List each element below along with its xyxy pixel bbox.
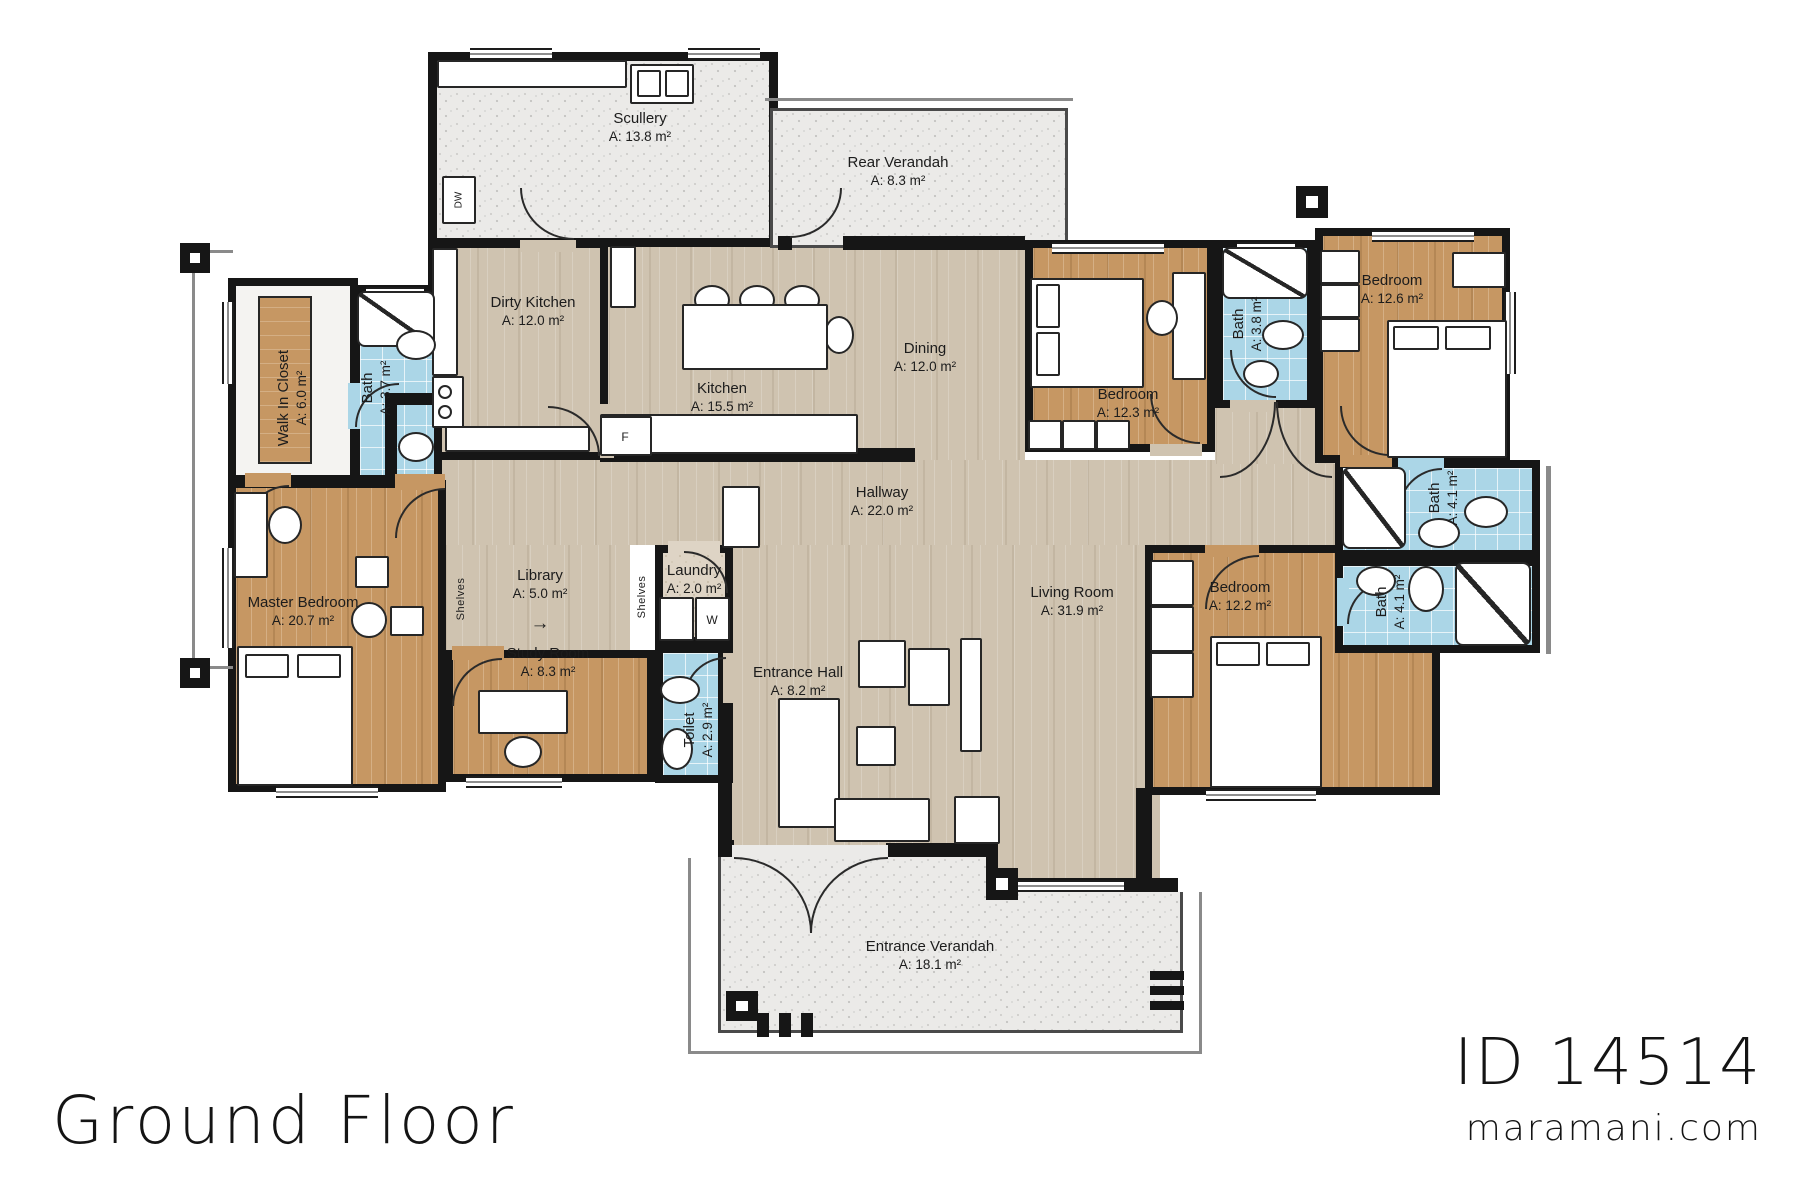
step-marker [779, 1013, 791, 1037]
label-bath-right-top: BathA: 3.8 m² [1230, 297, 1266, 352]
pillar [180, 658, 210, 688]
furniture-desk [1172, 272, 1206, 380]
furniture-chair [1146, 300, 1178, 336]
furniture-dining-table [682, 304, 828, 370]
furniture-basin [398, 432, 434, 462]
furniture-closet-box [1320, 318, 1360, 352]
label-bath-upper-right: BathA: 4.1 m² [1426, 471, 1462, 526]
label-library: LibraryA: 5.0 m² [513, 567, 568, 603]
furniture-chair [504, 736, 542, 768]
door-gap [1340, 455, 1392, 467]
label-master-bedroom: Master BedroomA: 20.7 m² [247, 594, 359, 630]
furniture-stove-ring [438, 405, 452, 419]
label-scullery: SculleryA: 13.8 m² [609, 110, 671, 146]
terrace-line [1546, 466, 1551, 654]
dishwasher-label: DW [454, 192, 465, 209]
furniture-pillow [1216, 642, 1260, 666]
furniture-shower [1455, 562, 1531, 646]
furniture-coffee-table [856, 726, 896, 766]
furniture-chair [268, 506, 302, 544]
door-gap [1150, 444, 1202, 456]
step-marker [757, 1013, 769, 1037]
furniture-stove-ring [438, 385, 452, 399]
label-dining: DiningA: 12.0 m² [894, 340, 956, 376]
library-arrow-icon: → [531, 613, 550, 635]
furniture-closet-box [1028, 420, 1062, 450]
window [1012, 880, 1124, 892]
furniture-desk [234, 492, 268, 578]
furniture-armchair [954, 796, 1000, 844]
website-label: maramani.com [1466, 1108, 1762, 1149]
window [688, 48, 760, 60]
label-walk-in-closet: Walk In ClosetA: 6.0 m² [275, 350, 311, 446]
furniture-sofa [834, 798, 930, 842]
terrace-line [1199, 892, 1202, 1054]
furniture-sofa [778, 698, 840, 828]
furniture-laundry-unit [659, 597, 694, 641]
furniture-toilet [660, 676, 700, 704]
furniture-shower [1342, 467, 1406, 549]
label-living-room: Living RoomA: 31.9 m² [1030, 584, 1113, 620]
furniture-hall-cabinet [722, 486, 760, 548]
window [276, 786, 378, 798]
label-entrance-hall: Entrance HallA: 8.2 m² [753, 664, 843, 700]
step-marker [1150, 1001, 1184, 1010]
window [1206, 789, 1316, 801]
pillar [1296, 186, 1328, 218]
label-entrance-verandah: Entrance VerandahA: 18.1 m² [866, 938, 994, 974]
room-entrance-verandah-right [998, 892, 1183, 1033]
terrace-line [688, 858, 691, 1054]
terrace-line [192, 252, 195, 662]
window [466, 776, 562, 788]
furniture-desk [1452, 252, 1506, 288]
shelves-right-label: Shelves [636, 576, 648, 619]
label-bedroom-right-top: BedroomA: 12.3 m² [1097, 386, 1159, 422]
furniture-counter [432, 248, 458, 376]
furniture-pillow [1266, 642, 1310, 666]
furniture-cabinet [610, 246, 636, 308]
label-study-room: Study RoomA: 8.3 m² [507, 645, 590, 681]
label-bath-lower-right: BathA: 4.1 m² [1373, 575, 1409, 630]
wall-segment [778, 236, 792, 250]
step-marker [1150, 971, 1184, 980]
furniture-shower [1222, 247, 1308, 299]
furniture-armchair [355, 556, 389, 588]
furniture-desk [478, 690, 568, 734]
furniture-closet-box [1150, 560, 1194, 606]
step-marker [801, 1013, 813, 1037]
furniture-closet-box [1096, 420, 1130, 450]
pillar [180, 243, 210, 273]
furniture-pillow [1036, 284, 1060, 328]
wall-segment [886, 843, 998, 857]
furniture-armchair [908, 648, 950, 706]
furniture-toilet [1464, 496, 1508, 528]
step-marker [1150, 986, 1184, 995]
window [1372, 230, 1474, 242]
furniture-stove [432, 376, 464, 428]
furniture-toilet [396, 330, 436, 360]
door-gap [732, 845, 888, 859]
label-toilet: ToiletA: 2.9 m² [681, 703, 717, 758]
furniture-armchair [390, 606, 424, 636]
furniture-closet-box [1320, 284, 1360, 318]
pillar [986, 868, 1018, 900]
furniture-pillow [1445, 326, 1491, 350]
furniture-toilet [1408, 566, 1444, 612]
terrace-line [765, 98, 1073, 101]
window [222, 302, 234, 384]
label-bedroom-right-bottom: BedroomA: 12.2 m² [1209, 579, 1271, 615]
window [1052, 242, 1164, 254]
label-laundry: LaundryA: 2.0 m² [667, 562, 722, 598]
furniture-pillow [245, 654, 289, 678]
window [222, 548, 234, 648]
furniture-toilet [1262, 320, 1304, 350]
furniture-counter [445, 426, 590, 452]
furniture-dining-chair [824, 316, 854, 354]
furniture-closet-box [1150, 606, 1194, 652]
label-hallway: HallwayA: 22.0 m² [851, 484, 913, 520]
wall-segment [843, 236, 1025, 250]
furniture-sink-basin [637, 70, 661, 97]
label-bath-master: BathA: 3.7 m² [359, 361, 395, 416]
furniture-pillow [1393, 326, 1439, 350]
terrace-line [688, 1051, 1202, 1054]
label-kitchen: KitchenA: 15.5 m² [691, 380, 753, 416]
wall-segment [1136, 788, 1152, 892]
label-dirty-kitchen: Dirty KitchenA: 12.0 m² [490, 294, 575, 330]
furniture-sink-basin [665, 70, 689, 97]
furniture-pillow [297, 654, 341, 678]
furniture-counter [437, 60, 627, 88]
window [470, 48, 552, 60]
furniture-tv-console [960, 638, 982, 752]
fridge-label: F [621, 430, 628, 444]
door-gap [520, 240, 576, 252]
furniture-pillow [1036, 332, 1060, 376]
shelves-left-label: Shelves [455, 578, 467, 621]
floor-plan-canvas: Ground Floor ID 14514 maramani.com Scull… [0, 0, 1800, 1200]
pillar [726, 991, 758, 1021]
furniture-basin [1243, 360, 1279, 388]
furniture-closet-box [1150, 652, 1194, 698]
washer-label: W [706, 613, 717, 627]
plan-id: ID 14514 [1454, 1026, 1762, 1100]
label-bedroom-far-right: BedroomA: 12.6 m² [1361, 272, 1423, 308]
furniture-closet-box [1320, 250, 1360, 284]
label-rear-verandah: Rear VerandahA: 8.3 m² [848, 154, 949, 190]
floor-title: Ground Floor [52, 1082, 516, 1159]
furniture-closet-box [1062, 420, 1096, 450]
furniture-armchair [858, 640, 906, 688]
